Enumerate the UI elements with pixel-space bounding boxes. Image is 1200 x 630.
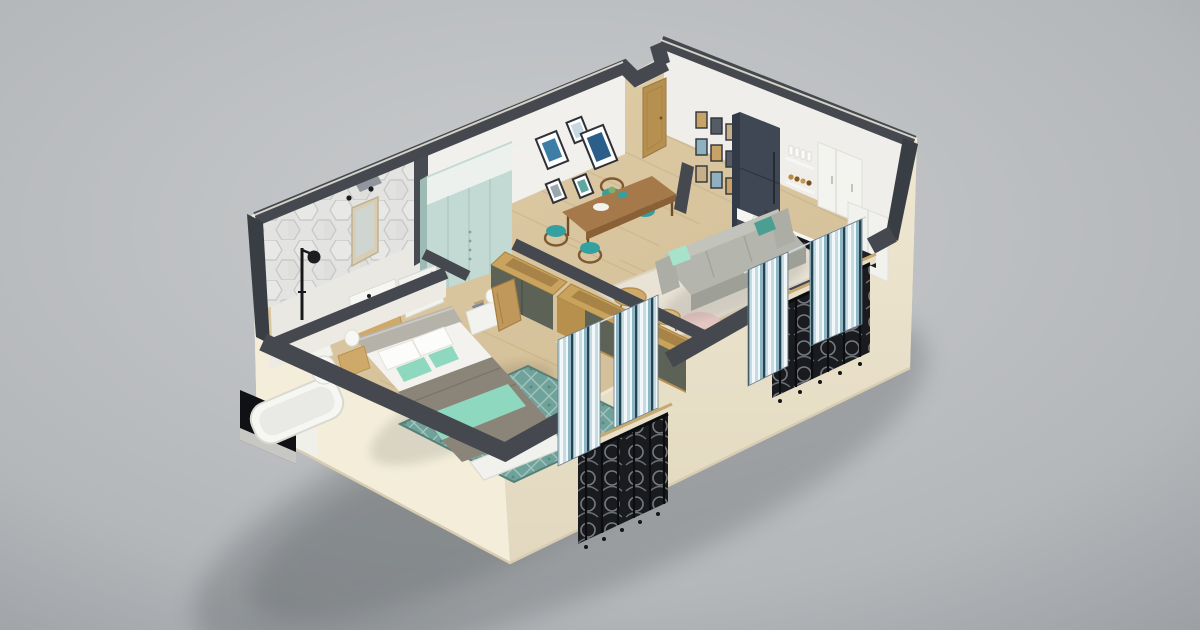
entry-door xyxy=(643,78,666,158)
table-lamp xyxy=(345,330,359,346)
sconce-left xyxy=(346,195,351,200)
scene-canvas xyxy=(0,0,1200,630)
curtain-panel xyxy=(614,295,658,428)
floor-plan-render xyxy=(0,0,1200,630)
table-plant xyxy=(609,187,616,194)
curtain-panel xyxy=(558,321,600,466)
curtain-panel xyxy=(748,252,788,386)
table-dish xyxy=(593,203,609,211)
southeast-wall-top xyxy=(871,234,893,246)
sconce-right xyxy=(368,186,373,191)
